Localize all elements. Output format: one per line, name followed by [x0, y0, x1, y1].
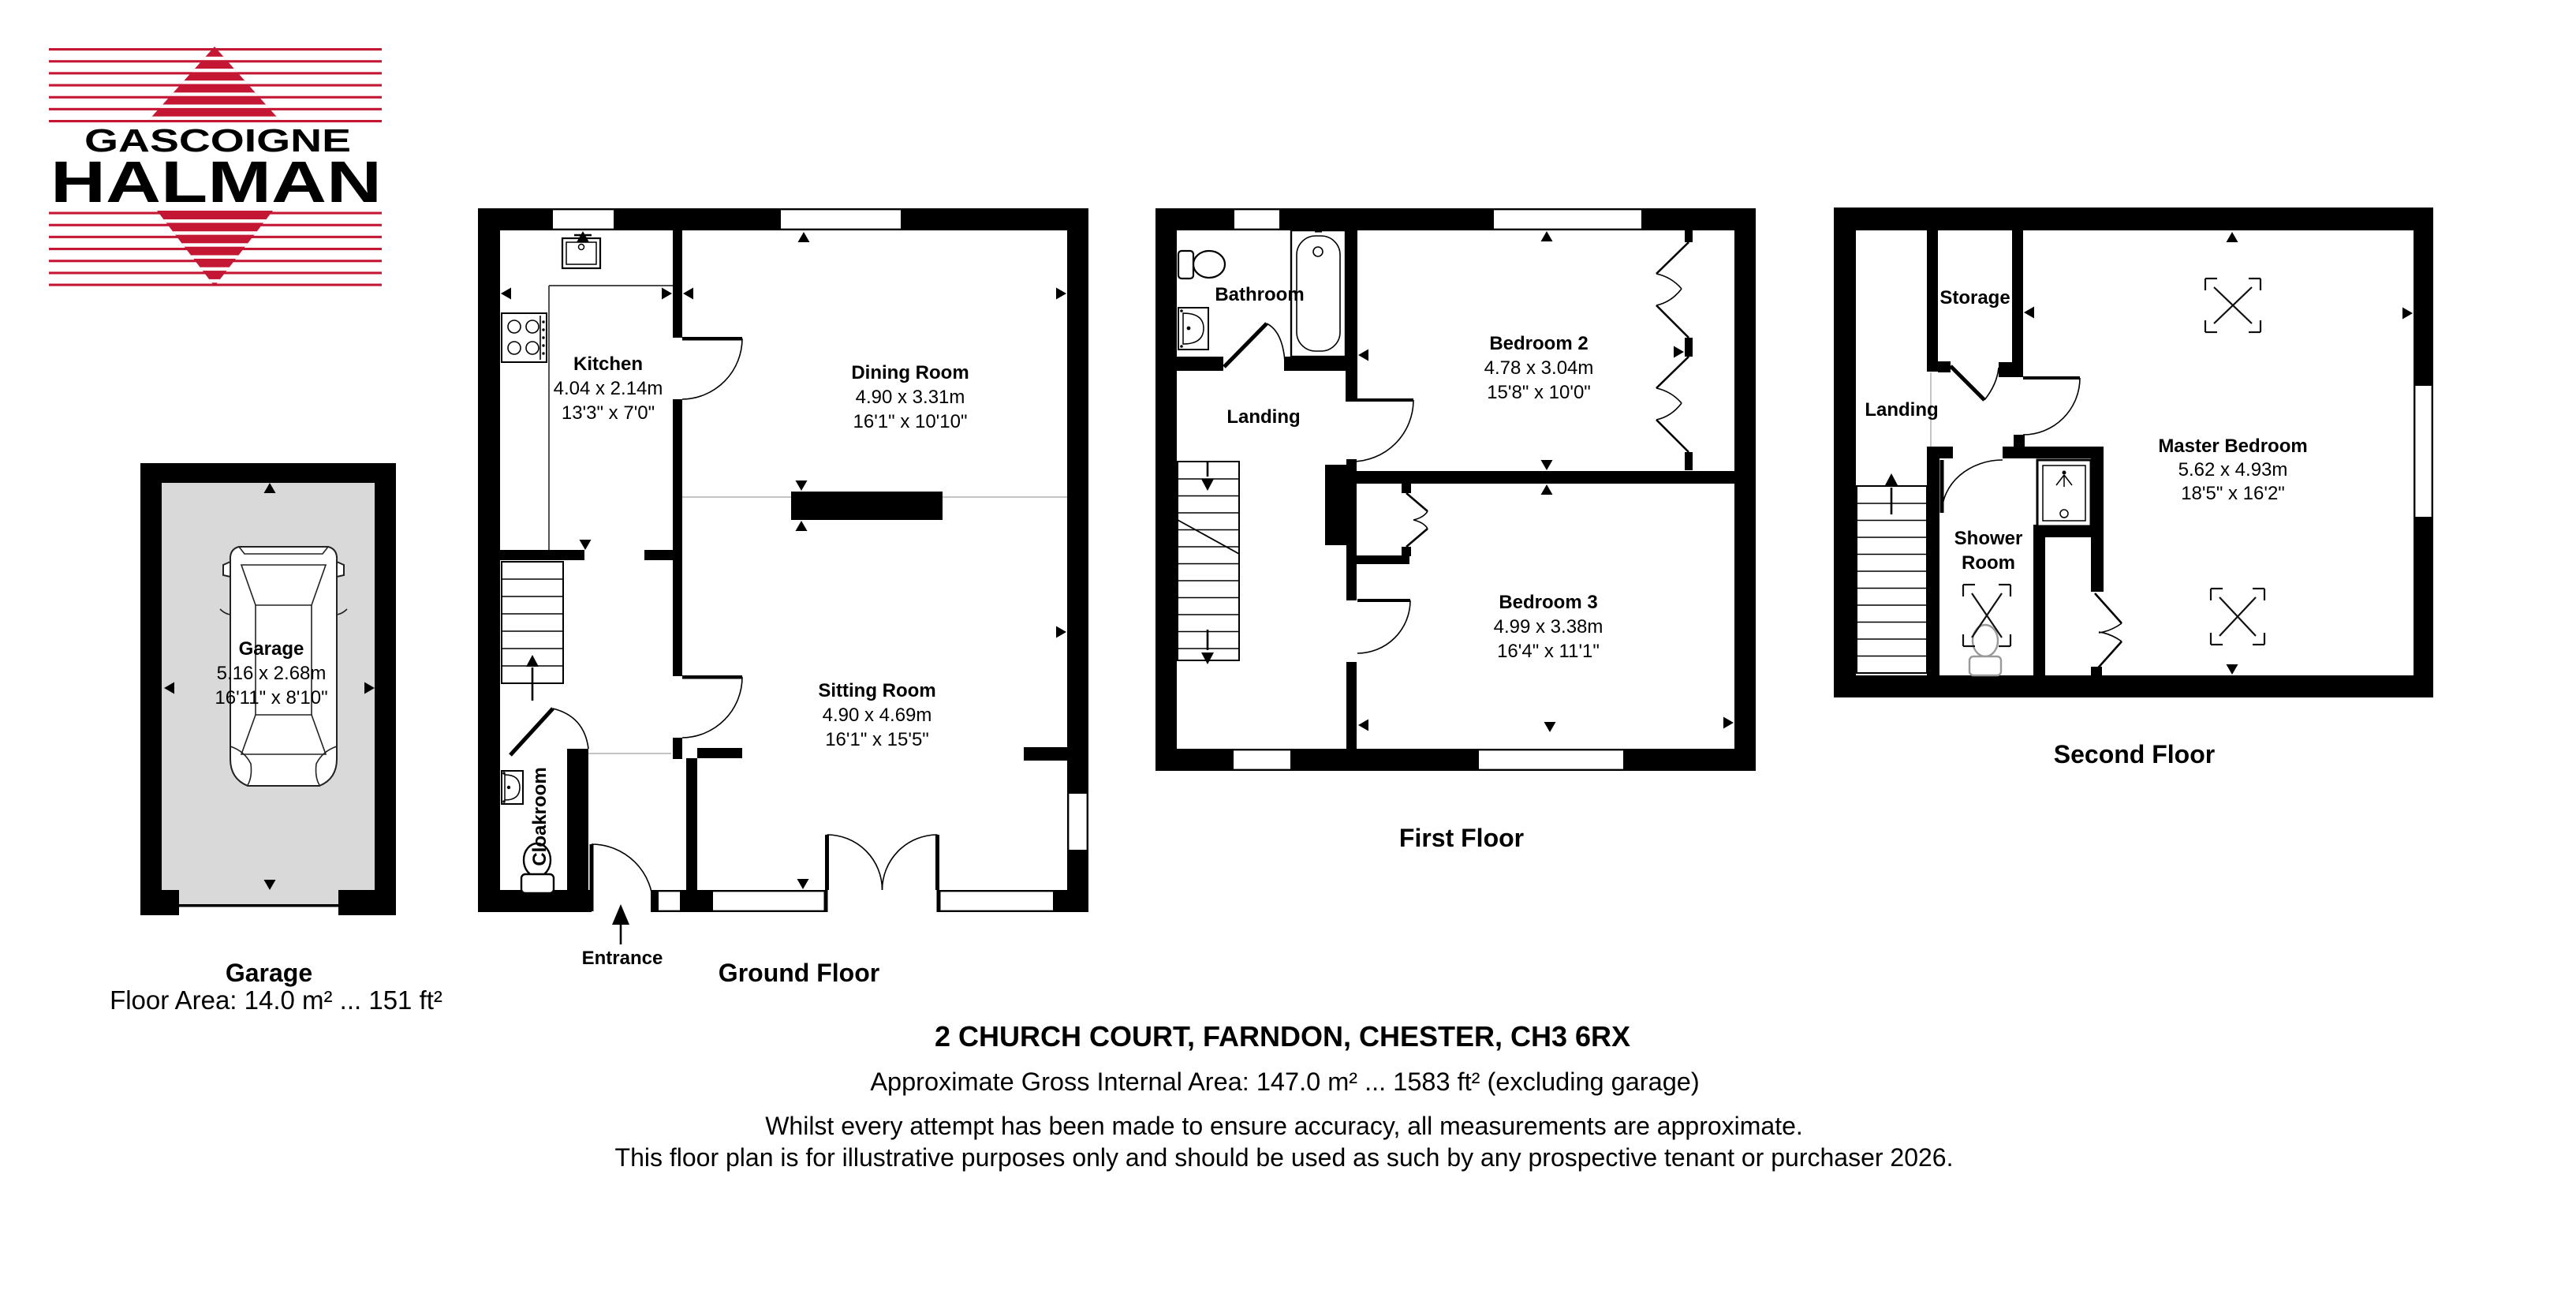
- svg-text:4.99 x 3.38m: 4.99 x 3.38m: [1494, 616, 1603, 638]
- svg-text:18'5" x 16'2": 18'5" x 16'2": [2181, 483, 2285, 504]
- svg-text:4.04 x 2.14m: 4.04 x 2.14m: [554, 378, 663, 399]
- svg-text:First Floor: First Floor: [1399, 824, 1524, 852]
- svg-text:4.90 x 4.69m: 4.90 x 4.69m: [823, 705, 932, 726]
- svg-text:Shower: Shower: [1954, 528, 2023, 549]
- svg-text:Floor Area: 14.0 m² ... 151 ft: Floor Area: 14.0 m² ... 151 ft²: [110, 985, 442, 1015]
- svg-text:16'4" x 11'1": 16'4" x 11'1": [1497, 641, 1600, 662]
- svg-text:2 CHURCH COURT, FARNDON, CHEST: 2 CHURCH COURT, FARNDON, CHESTER, CH3 6R…: [935, 1020, 1630, 1053]
- svg-text:Room: Room: [1962, 552, 2015, 574]
- svg-text:Garage: Garage: [239, 638, 304, 660]
- svg-text:5.62 x 4.93m: 5.62 x 4.93m: [2178, 459, 2288, 480]
- svg-text:HALMAN: HALMAN: [50, 149, 382, 215]
- svg-text:5.16 x 2.68m: 5.16 x 2.68m: [217, 663, 327, 684]
- svg-text:Second Floor: Second Floor: [2054, 740, 2215, 768]
- svg-text:15'8" x 10'0": 15'8" x 10'0": [1487, 382, 1591, 403]
- svg-text:Kitchen: Kitchen: [573, 353, 643, 375]
- svg-text:Garage: Garage: [226, 959, 312, 987]
- svg-text:Bathroom: Bathroom: [1215, 284, 1304, 305]
- svg-text:4.90 x 3.31m: 4.90 x 3.31m: [856, 387, 965, 408]
- svg-text:16'1" x 15'5": 16'1" x 15'5": [825, 729, 929, 750]
- svg-text:Dining Room: Dining Room: [851, 362, 969, 383]
- svg-text:Cloakroom: Cloakroom: [529, 767, 551, 866]
- svg-text:Landing: Landing: [1226, 406, 1300, 428]
- svg-text:Storage: Storage: [1939, 287, 2010, 308]
- svg-text:16'11" x 8'10": 16'11" x 8'10": [215, 687, 327, 709]
- svg-text:4.78 x 3.04m: 4.78 x 3.04m: [1484, 357, 1594, 379]
- svg-text:Bedroom 3: Bedroom 3: [1499, 592, 1597, 613]
- svg-text:Whilst every attempt has been: Whilst every attempt has been made to en…: [765, 1112, 1803, 1140]
- svg-text:16'1" x 10'10": 16'1" x 10'10": [853, 411, 968, 432]
- svg-text:Master Bedroom: Master Bedroom: [2158, 436, 2307, 457]
- svg-text:Sitting Room: Sitting Room: [818, 680, 935, 701]
- svg-text:This floor plan is for illustr: This floor plan is for illustrative purp…: [615, 1143, 1954, 1172]
- svg-text:Landing: Landing: [1865, 399, 1938, 421]
- svg-text:Bedroom 2: Bedroom 2: [1489, 333, 1588, 354]
- svg-text:Ground Floor: Ground Floor: [719, 959, 879, 987]
- svg-text:13'3" x 7'0": 13'3" x 7'0": [562, 402, 655, 424]
- svg-text:Approximate Gross Internal Are: Approximate Gross Internal Area: 147.0 m…: [870, 1068, 1699, 1096]
- svg-text:Entrance: Entrance: [582, 948, 663, 969]
